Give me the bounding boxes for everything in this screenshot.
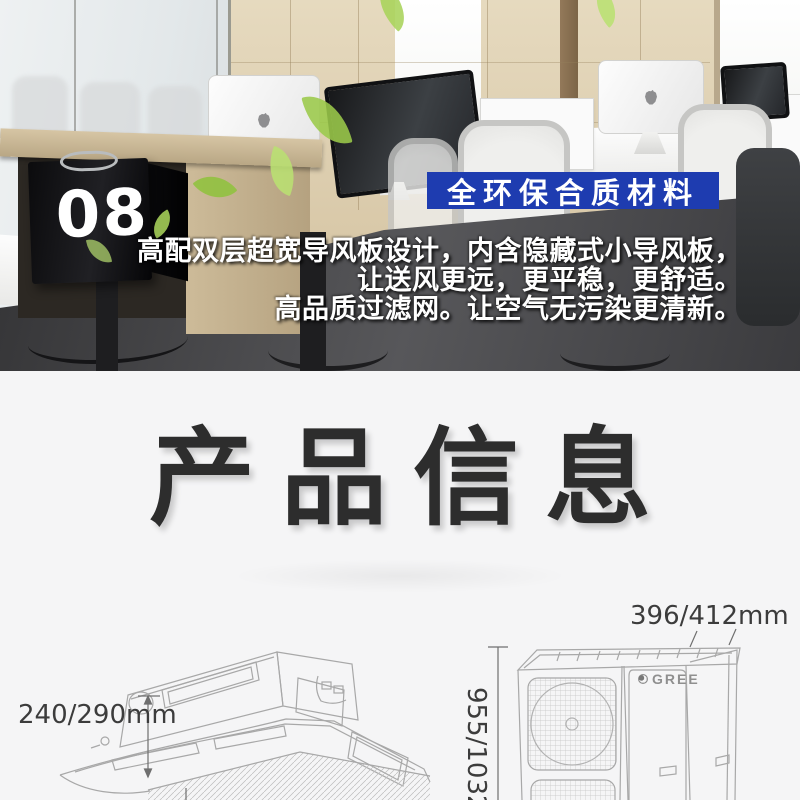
- office-chair-silhouette: [736, 148, 800, 326]
- marketing-line-3: 高品质过滤网。让空气无污染更清新。: [60, 295, 742, 324]
- box-handle: [60, 150, 119, 172]
- office-photo: 08 全环保合质材料 高配双层超宽导风板设计，内含隐藏式小导风板， 让送风更远，…: [0, 0, 800, 371]
- apple-logo-icon: [645, 90, 658, 105]
- chair-behind-glass: [80, 82, 140, 138]
- outdoor-height-label: 955/1032mm: [461, 687, 491, 800]
- indoor-height-label: 240/290mm: [18, 700, 177, 730]
- gree-logo: GREE: [638, 671, 700, 687]
- banner-label: 全环保合质材料: [447, 170, 699, 212]
- apple-logo-icon: [258, 113, 271, 128]
- chair-star-base: [560, 336, 670, 371]
- feature-banner: 全环保合质材料: [427, 172, 719, 209]
- outdoor-depth-label: 396/412mm: [630, 601, 789, 631]
- product-page: 08 全环保合质材料 高配双层超宽导风板设计，内含隐藏式小导风板， 让送风更远，…: [0, 0, 800, 800]
- chair-star-base: [268, 330, 388, 371]
- marketing-line-2: 让送风更远，更平稳，更舒适。: [60, 266, 742, 295]
- chair-behind-glass: [148, 86, 202, 138]
- gree-logo-text: GREE: [652, 671, 700, 687]
- section-heading: 产品信息: [0, 423, 800, 535]
- heading-shadow: [230, 559, 570, 593]
- marketing-line-1: 高配双层超宽导风板设计，内含隐藏式小导风板，: [60, 237, 742, 266]
- outdoor-unit-drawing: [518, 648, 740, 800]
- gree-logo-icon: [638, 674, 648, 684]
- leaf-icon: [586, 0, 626, 28]
- marketing-text: 高配双层超宽导风板设计，内含隐藏式小导风板， 让送风更远，更平稳，更舒适。 高品…: [60, 237, 742, 324]
